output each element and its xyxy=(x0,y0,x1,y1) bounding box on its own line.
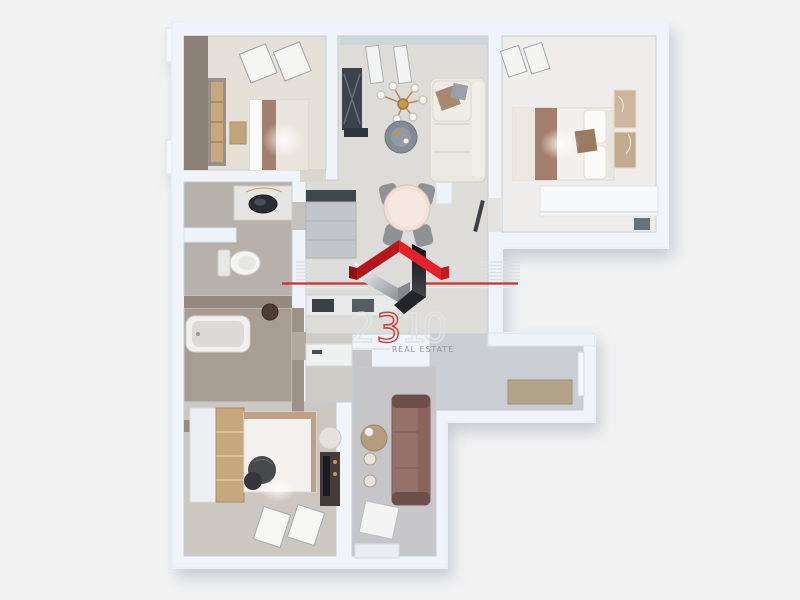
door-bedroom-tr xyxy=(488,198,502,232)
hob xyxy=(312,299,334,312)
bulb xyxy=(377,91,385,99)
sofa-arm xyxy=(392,395,430,408)
dining-table-top xyxy=(388,189,426,227)
hall-counter xyxy=(306,344,352,366)
mauve-sofa xyxy=(392,395,430,505)
gold-tray xyxy=(395,130,401,136)
light-glow xyxy=(540,128,580,160)
sofa-back xyxy=(418,398,430,502)
headboard-wood xyxy=(244,412,316,419)
logo-tagline: REAL ESTATE xyxy=(392,345,454,354)
table-inner xyxy=(391,127,411,147)
wardrobe-panel xyxy=(614,132,636,168)
entry-door xyxy=(578,352,584,396)
door-lounge xyxy=(352,350,372,367)
wall-niche xyxy=(634,218,650,230)
sofa-arm xyxy=(392,492,430,505)
floorplan-svg: 2 3 1 0 REAL ESTATE xyxy=(0,0,800,600)
knit-pouf xyxy=(319,427,341,449)
logo-digit: 2 xyxy=(350,306,375,352)
cabinet-run xyxy=(306,202,356,258)
bedframe-wood xyxy=(311,412,316,492)
window-sill xyxy=(340,36,488,45)
bulb xyxy=(419,96,427,104)
drain xyxy=(196,332,200,336)
door-bathroom-taupe xyxy=(292,332,306,360)
door-bedroom-tl xyxy=(300,170,326,182)
floorplan-render: 2 3 1 0 REAL ESTATE xyxy=(0,0,800,600)
doormat xyxy=(508,380,572,404)
dark-blanket xyxy=(244,472,262,490)
wardrobe-wood xyxy=(216,408,244,502)
desk-screen xyxy=(323,456,330,496)
counter-handle xyxy=(312,350,322,354)
candle xyxy=(365,428,373,436)
nightstand xyxy=(230,122,246,144)
toilet xyxy=(218,250,260,276)
door-bathroom xyxy=(292,202,306,230)
light-glow xyxy=(262,122,306,158)
taupe-wall xyxy=(292,308,304,420)
pillow-gray xyxy=(450,83,468,101)
sink-highlight xyxy=(254,199,266,206)
canopy xyxy=(398,99,408,109)
counter-dark-top xyxy=(306,190,356,202)
corner-sofa xyxy=(430,78,486,182)
cup xyxy=(404,139,409,144)
coffee-table xyxy=(385,121,417,153)
tv-shelf xyxy=(344,128,368,137)
light-glow xyxy=(260,478,296,502)
floor-candle xyxy=(364,453,376,465)
bed-foot-fold xyxy=(513,108,535,180)
toilet-tank xyxy=(218,250,230,276)
desk-item xyxy=(333,472,337,476)
wardrobe-frame xyxy=(190,408,216,502)
wall-stub-bathroom xyxy=(184,228,236,242)
roof-tip-right xyxy=(441,266,449,280)
bulb xyxy=(389,82,397,90)
floor-candle xyxy=(364,475,376,487)
headboard xyxy=(606,110,614,178)
toilet-seat xyxy=(238,256,256,270)
wall-basin xyxy=(262,304,278,320)
bed-pillows xyxy=(250,100,262,170)
side-table xyxy=(361,425,387,451)
sofa-back xyxy=(472,82,484,178)
bulb xyxy=(409,113,417,121)
bulb xyxy=(411,84,419,92)
bed xyxy=(250,100,308,170)
bed xyxy=(513,108,614,180)
accent-wall xyxy=(184,36,208,170)
wardrobe-panel xyxy=(614,90,636,128)
roof-tip-left xyxy=(349,266,357,280)
bed xyxy=(244,412,316,502)
window-pane xyxy=(359,501,399,539)
wall-corridor-top xyxy=(488,333,595,346)
window-wall xyxy=(355,544,399,558)
desk-item xyxy=(333,460,337,464)
